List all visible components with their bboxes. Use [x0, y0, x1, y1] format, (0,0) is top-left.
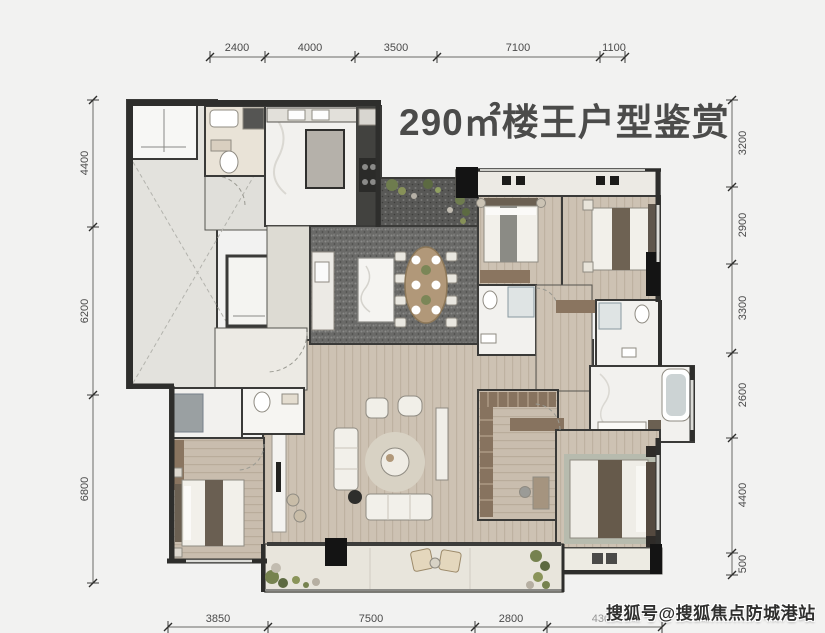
wall-post — [456, 167, 478, 198]
dim-top-5: 1100 — [602, 42, 626, 54]
dryer — [606, 553, 617, 564]
watermark: 搜狐号@搜狐焦点防城港站 — [606, 599, 816, 624]
wall-post — [650, 544, 662, 574]
corridor-entry — [267, 226, 311, 340]
lounge-chair — [410, 548, 434, 572]
kitchen-sink-2 — [312, 110, 329, 120]
bed-runner — [612, 208, 630, 270]
dim-top-2: 4000 — [298, 42, 322, 54]
wall-post — [325, 538, 347, 566]
sofa — [334, 428, 358, 490]
sofa-2 — [366, 494, 432, 520]
dim-right-2: 2900 — [737, 213, 749, 237]
dim-top-4: 7100 — [506, 42, 530, 54]
coffee-table — [381, 448, 409, 476]
nightstand — [583, 200, 593, 210]
window-symbol — [502, 176, 511, 185]
room-balcony — [265, 542, 563, 592]
dim-bottom-3: 2800 — [499, 613, 523, 625]
dim-left-1: 4400 — [79, 151, 91, 175]
bed-headboard — [484, 198, 538, 206]
apartment-plan — [127, 100, 694, 592]
toilet — [483, 291, 497, 309]
dim-top-3: 3500 — [384, 42, 408, 54]
room-bath-1 — [205, 106, 267, 176]
dim-bottom-2: 7500 — [359, 613, 383, 625]
sink — [481, 334, 496, 343]
dim-right-6: 500 — [737, 555, 749, 573]
page-title: 290㎡楼王户型鉴赏 — [399, 92, 730, 146]
room-dining — [310, 226, 480, 344]
north-balcony — [456, 170, 660, 196]
dim-left-2: 6200 — [79, 299, 91, 323]
room-bath-3 — [170, 388, 304, 438]
shower — [173, 394, 203, 432]
shower — [243, 108, 264, 129]
fridge — [359, 109, 378, 125]
room-closet — [478, 390, 564, 520]
dim-right-4: 2600 — [737, 383, 749, 407]
toilet — [220, 151, 238, 173]
room-bath-a — [478, 285, 536, 355]
bed-headboard — [646, 462, 656, 536]
dim-right-1: 3200 — [737, 131, 749, 155]
wardrobe — [480, 270, 530, 283]
room-bedroom-a — [477, 196, 563, 288]
room-kitchen — [265, 106, 381, 226]
bed-runner — [205, 480, 223, 546]
accent-chair — [287, 494, 299, 506]
shower — [599, 303, 621, 329]
bed-headboard — [175, 484, 182, 542]
sliding-door-track — [267, 542, 561, 546]
sink — [211, 140, 231, 151]
dim-top-1: 2400 — [225, 42, 249, 54]
wardrobe — [556, 300, 596, 313]
washer — [592, 553, 603, 564]
shower — [508, 287, 534, 317]
desk — [533, 477, 549, 509]
lounge-chair-2 — [438, 549, 461, 572]
sink — [622, 348, 636, 357]
nightstand — [477, 199, 486, 208]
sink — [282, 394, 298, 404]
armchair-2 — [398, 396, 422, 416]
kitchen-sink — [288, 110, 305, 120]
stove — [359, 158, 378, 192]
bathtub — [210, 110, 238, 127]
bed-runner — [598, 460, 622, 538]
tv — [276, 462, 281, 492]
dim-bottom-1: 3850 — [206, 613, 230, 625]
floor-plan-page: 2400 4000 3500 7100 1100 4400 6200 6800 … — [0, 0, 825, 633]
armchair — [366, 398, 388, 418]
dim-left-3: 6800 — [79, 477, 91, 501]
toilet — [635, 305, 649, 323]
dining-table — [405, 247, 447, 323]
toilet — [254, 392, 270, 412]
side-table — [348, 490, 362, 504]
entry-foyer — [215, 328, 307, 390]
plant — [386, 179, 398, 191]
sideboard — [436, 408, 448, 480]
kitchen-island — [306, 130, 344, 188]
dim-right-3: 3300 — [737, 296, 749, 320]
patio-table — [430, 558, 440, 568]
room-bedroom-3 — [170, 438, 264, 562]
dim-right-5: 4400 — [737, 483, 749, 507]
desk-chair — [520, 487, 531, 498]
